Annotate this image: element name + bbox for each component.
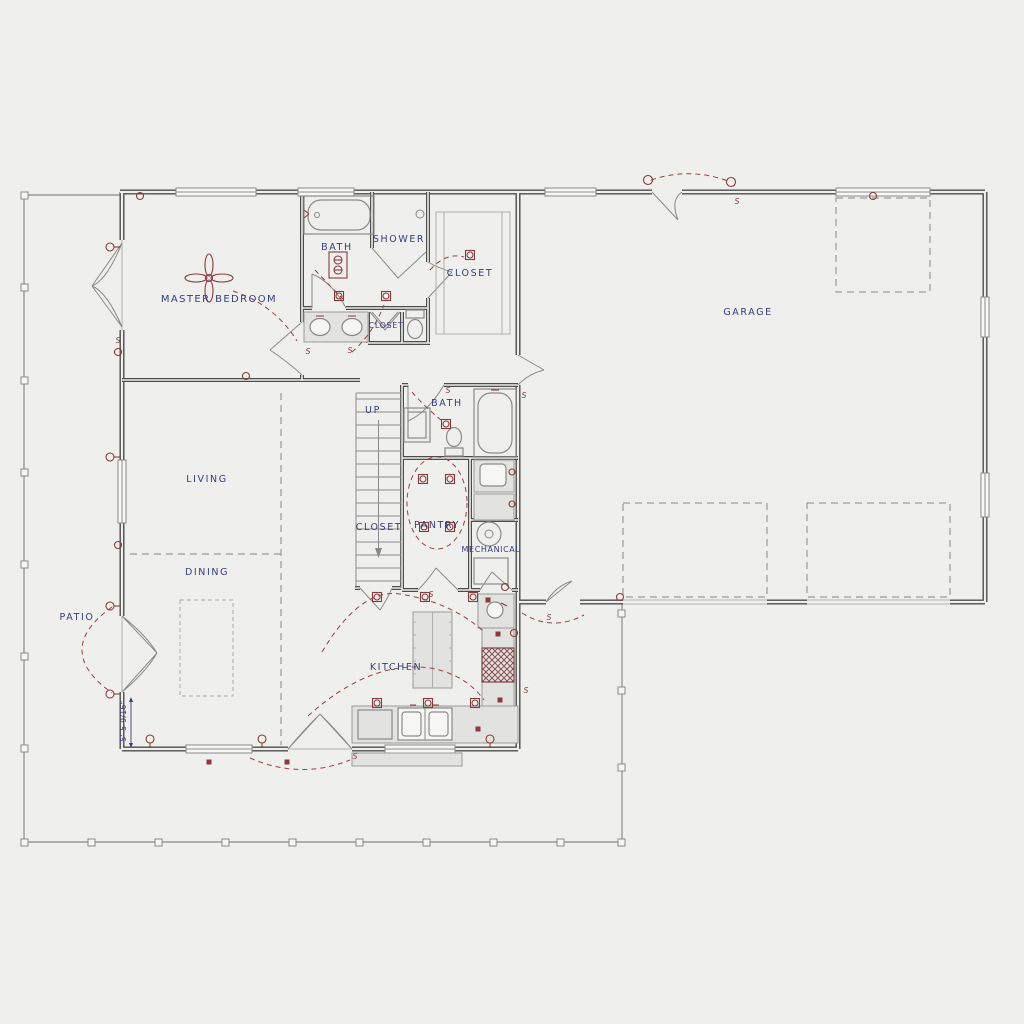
porch-step	[352, 753, 462, 766]
double-vanity-icon	[304, 312, 368, 342]
dimension-patio-depth: 5'-5 9/16"	[119, 697, 133, 748]
shower-entry	[372, 248, 426, 278]
svg-text:S: S	[735, 197, 740, 206]
garage-storage-outline	[836, 198, 930, 292]
control-panel-icon	[329, 252, 347, 278]
room-label-patio: PATIO	[60, 612, 95, 623]
windows	[118, 188, 989, 753]
toilet-icon	[406, 310, 424, 339]
bathtub-icon	[304, 196, 374, 234]
svg-text:5'-5 9/16": 5'-5 9/16"	[119, 701, 128, 742]
room-label-kitchen: KITCHEN	[370, 662, 422, 673]
svg-text:S: S	[522, 391, 527, 400]
door-garage-mud	[546, 581, 572, 602]
room-label-dining: DINING	[185, 567, 229, 578]
svg-text:S: S	[116, 336, 121, 345]
stairs	[356, 393, 401, 588]
french-door-south	[288, 714, 352, 749]
window	[836, 188, 930, 196]
svg-text:S: S	[429, 590, 434, 599]
range-icon	[482, 648, 514, 682]
window	[118, 460, 126, 523]
window	[981, 297, 989, 337]
switch-leg-arcs	[82, 174, 728, 770]
shower-stall-icon	[404, 408, 430, 442]
exterior-walls	[120, 192, 985, 749]
fixtures	[180, 196, 516, 766]
shower-head-icon	[416, 210, 424, 218]
kitchen-fixtures	[130, 198, 950, 745]
window	[176, 188, 256, 196]
utility-sink-icon	[474, 460, 514, 520]
dining-table-outline	[180, 600, 233, 696]
french-door-master	[92, 240, 122, 330]
bathtub-icon	[474, 389, 516, 457]
toilet-icon	[445, 428, 463, 457]
window	[981, 473, 989, 517]
garage-door-track	[807, 503, 950, 597]
door-garage-north	[652, 192, 682, 220]
room-label-linen-closet: CLOSET	[369, 321, 404, 330]
room-label-stairs-up: UP	[365, 405, 381, 416]
floor-plan-page: S S S S S S S S S S 5'-5 9/16" MASTER BE…	[0, 0, 1024, 1024]
svg-text:S: S	[306, 347, 311, 356]
door-hall-garage	[518, 355, 544, 385]
room-label-hall-bath: BATH	[431, 398, 463, 409]
window	[385, 745, 455, 753]
room-label-pantry: PANTRY	[414, 520, 460, 531]
door-master-bedroom	[270, 322, 302, 375]
room-labels: MASTER BEDROOM BATH SHOWER CLOSET CLOSET…	[60, 234, 773, 673]
window	[186, 745, 252, 753]
door-mechanical	[480, 572, 512, 590]
window	[298, 188, 354, 196]
room-label-master-bedroom: MASTER BEDROOM	[161, 294, 277, 305]
prep-sink-icon	[487, 602, 503, 618]
room-label-living: LIVING	[186, 474, 227, 485]
svg-text:S: S	[353, 752, 358, 761]
door-pantry	[418, 568, 458, 590]
floor-plan-canvas: S S S S S S S S S S 5'-5 9/16" MASTER BE…	[0, 0, 1024, 1024]
room-label-garage: GARAGE	[723, 307, 772, 318]
svg-text:S: S	[348, 346, 353, 355]
room-label-shower: SHOWER	[373, 234, 425, 245]
window	[545, 188, 596, 196]
stair-direction-arrow	[375, 548, 382, 558]
room-label-stair-closet: CLOSET	[356, 522, 403, 533]
door-stair-closet	[360, 588, 392, 610]
svg-text:S: S	[446, 386, 451, 395]
garage-door-track	[623, 503, 767, 597]
kitchen-island	[413, 612, 452, 688]
svg-text:S: S	[547, 613, 552, 622]
french-door-patio	[122, 616, 157, 692]
svg-text:S: S	[524, 686, 529, 695]
room-label-walkin-closet: CLOSET	[447, 268, 494, 279]
room-label-mechanical: MECHANICAL	[462, 545, 521, 554]
room-label-master-bath: BATH	[321, 242, 353, 253]
porch-outline	[21, 192, 625, 846]
